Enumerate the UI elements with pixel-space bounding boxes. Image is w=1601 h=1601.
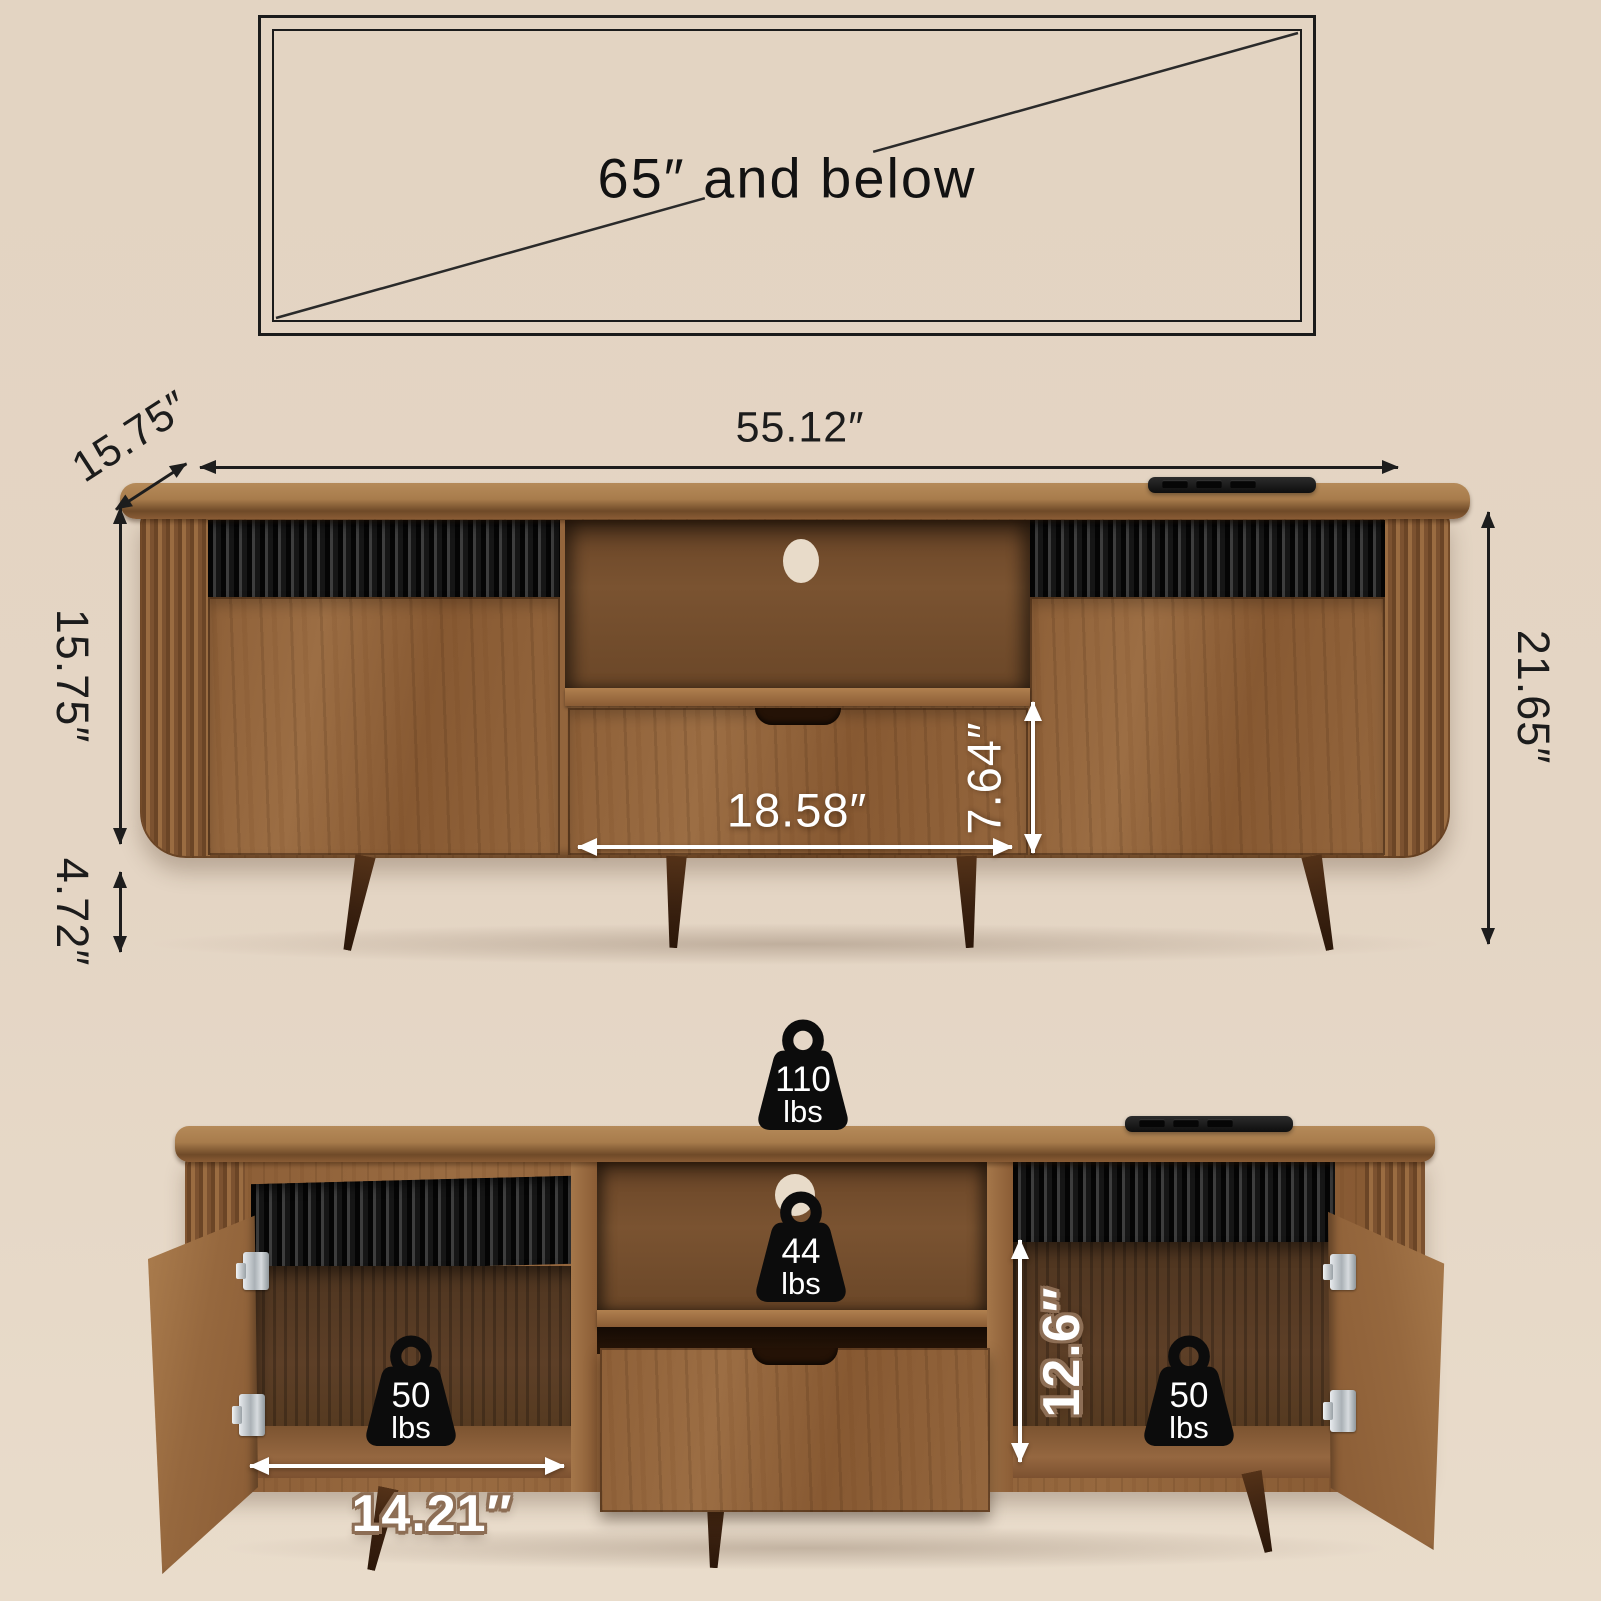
power-outlet [1196, 480, 1222, 488]
center-divider-right [987, 1162, 1013, 1492]
center-divider-left [571, 1162, 597, 1492]
leg-height-arrow [119, 872, 122, 952]
width-arrow [200, 466, 1398, 469]
cable-hole [783, 539, 819, 583]
power-outlet [1162, 480, 1188, 488]
door-hinge [1330, 1254, 1356, 1290]
weight-unit: lbs [358, 1412, 464, 1443]
fluted-black-panel-left [251, 1176, 571, 1272]
weight-value: 50 [358, 1378, 464, 1413]
door-hinge [239, 1394, 265, 1436]
power-outlet [1230, 480, 1256, 488]
drawer-front-open [600, 1348, 990, 1512]
power-outlet [1207, 1119, 1233, 1127]
body-height-label: 15.75″ [46, 609, 98, 744]
total-height-arrow [1487, 512, 1490, 944]
power-strip [1148, 477, 1316, 493]
weight-capacity-shelf: 44 lbs [748, 1188, 854, 1304]
left-door [208, 597, 560, 855]
weight-capacity-left-cabinet: 50 lbs [358, 1332, 464, 1448]
weight-unit: lbs [748, 1268, 854, 1299]
tv-size-box-inner: 65″ and below [272, 29, 1302, 322]
weight-value: 50 [1136, 1378, 1242, 1413]
drawer-width-label: 18.58″ [727, 783, 867, 838]
right-door [1030, 597, 1385, 855]
cabinet-shadow [140, 923, 1450, 965]
power-outlet [1173, 1119, 1199, 1127]
cabinet-inner-height-label: 12.6″ [1032, 1286, 1092, 1417]
cabinet-inner-width-label: 14.21″ [351, 1484, 512, 1544]
drawer-height-arrow [1031, 702, 1035, 853]
leg-height-label: 4.72″ [46, 858, 98, 967]
drawer-handle-notch [752, 1348, 838, 1365]
weight-unit: lbs [750, 1096, 856, 1127]
power-strip [1125, 1116, 1293, 1132]
total-height-label: 21.65″ [1507, 630, 1559, 765]
fluted-side-right [1380, 516, 1448, 856]
cabinet-inner-width-arrow [250, 1464, 564, 1468]
fluted-black-panel-left [208, 520, 560, 597]
door-hinge [1330, 1390, 1356, 1432]
body-height-arrow [119, 508, 122, 844]
drawer-height-label: 7.64″ [957, 721, 1012, 834]
power-outlet [1139, 1119, 1165, 1127]
drawer-width-arrow [578, 845, 1012, 849]
width-label: 55.12″ [736, 404, 865, 453]
tv-size-box: 65″ and below [258, 15, 1316, 336]
fluted-black-panel-right [1013, 1160, 1335, 1242]
weight-capacity-top: 110 lbs [750, 1016, 856, 1132]
cabinet-closed-view [120, 483, 1470, 958]
cabinet-inner-height-arrow [1018, 1240, 1022, 1462]
shelf-board [565, 688, 1030, 706]
fluted-black-panel-right [1030, 520, 1385, 597]
tv-size-label: 65″ and below [598, 146, 977, 211]
fluted-side-left [142, 516, 210, 856]
weight-capacity-right-cabinet: 50 lbs [1136, 1332, 1242, 1448]
weight-unit: lbs [1136, 1412, 1242, 1443]
weight-value: 110 [750, 1062, 856, 1097]
product-dimension-diagram: 65″ and below [0, 0, 1601, 1601]
weight-value: 44 [748, 1234, 854, 1269]
door-hinge [243, 1252, 269, 1290]
drawer-handle-notch [755, 708, 841, 725]
shelf-board [597, 1310, 987, 1327]
